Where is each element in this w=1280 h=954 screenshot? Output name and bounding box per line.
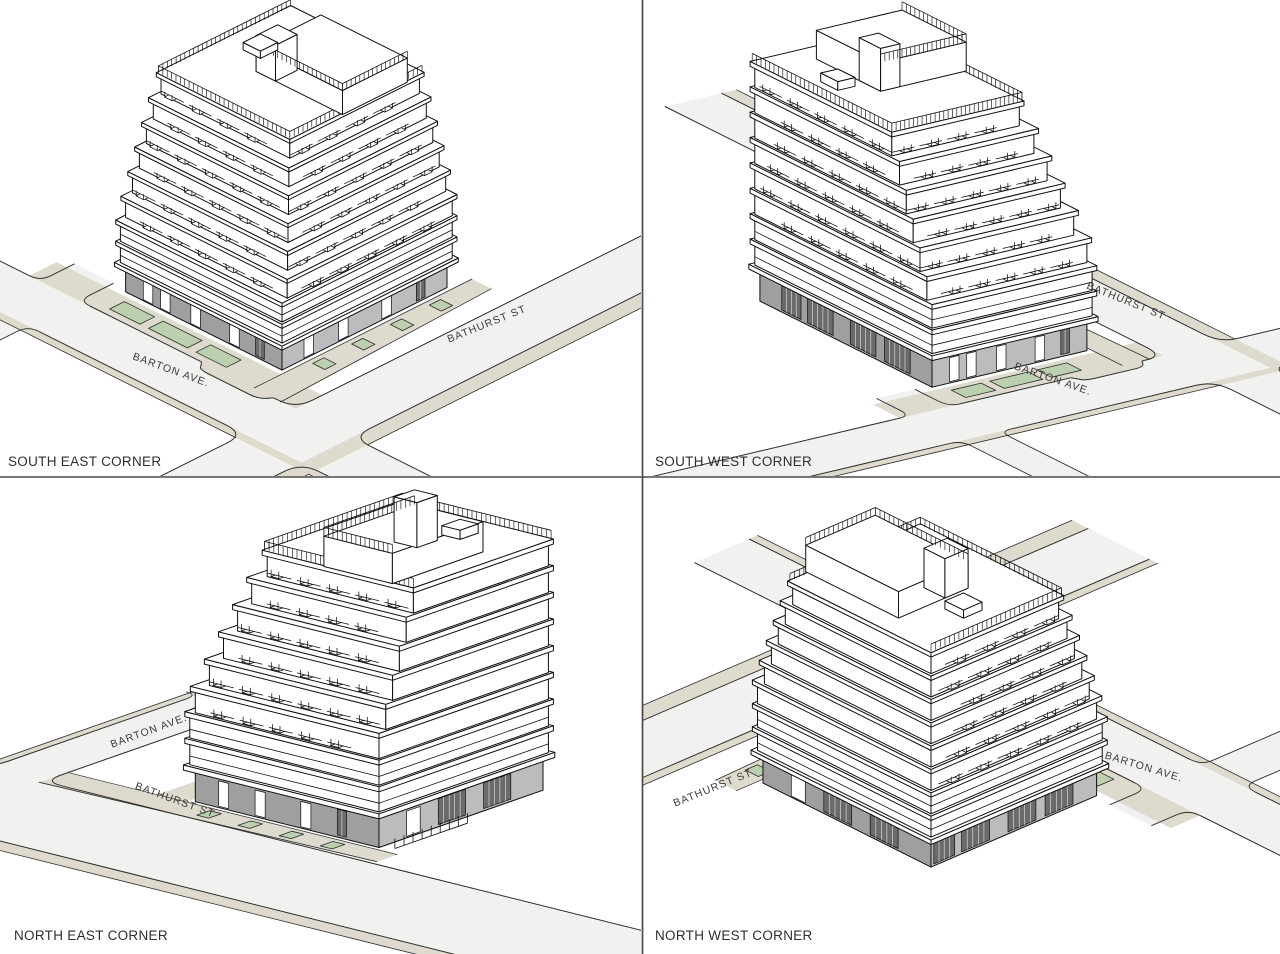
svg-text:SOUTH EAST CORNER: SOUTH EAST CORNER	[8, 454, 161, 469]
svg-text:NORTH WEST CORNER: NORTH WEST CORNER	[655, 928, 813, 943]
svg-text:SOUTH WEST CORNER: SOUTH WEST CORNER	[655, 454, 812, 469]
svg-text:NORTH EAST CORNER: NORTH EAST CORNER	[14, 928, 168, 943]
